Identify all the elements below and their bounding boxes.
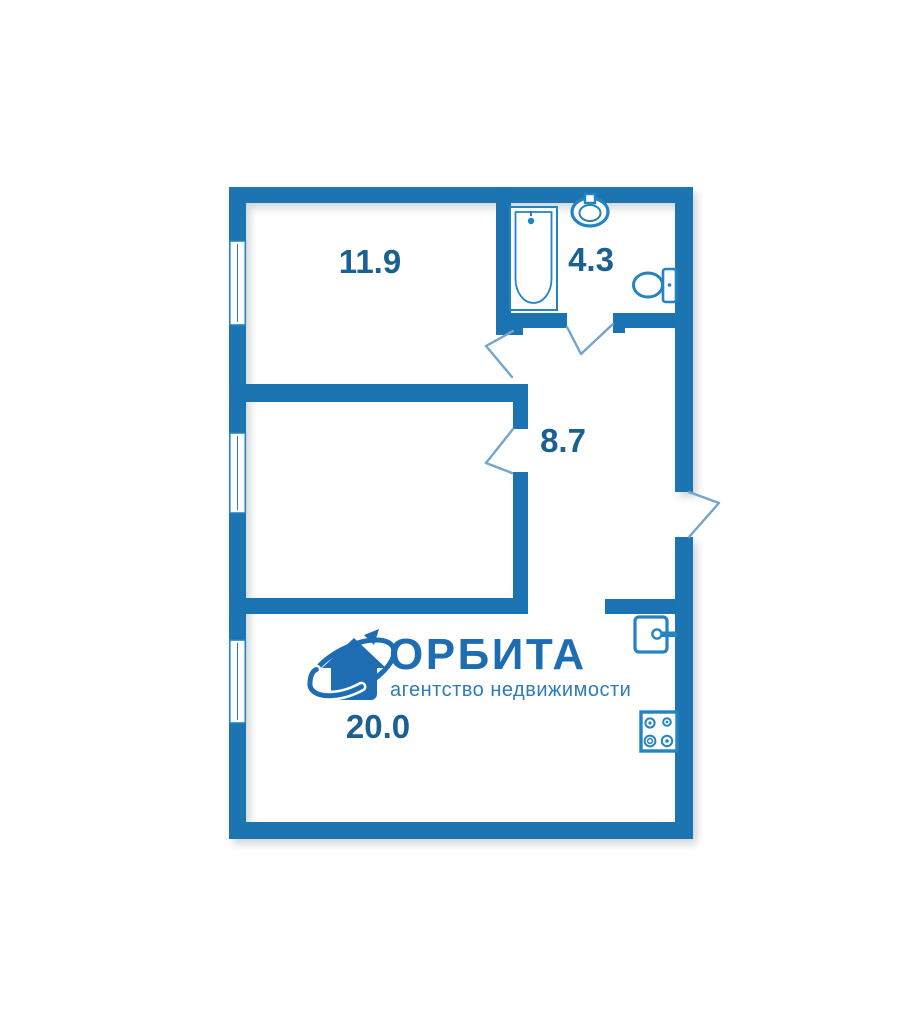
window: [230, 433, 246, 513]
toilet-icon: [634, 269, 677, 302]
wall: [496, 313, 567, 328]
wall: [229, 822, 693, 839]
wall: [675, 187, 693, 492]
wall: [229, 384, 527, 402]
wall: [513, 472, 528, 599]
window: [230, 241, 246, 325]
floor-plan-page: 11.9 4.3 8.7 20.0 ОРБИТА агентство недви…: [0, 0, 924, 1024]
bathtub-icon: [510, 207, 557, 310]
room-label-bathroom: 4.3: [568, 241, 614, 278]
room-label-hallway: 8.7: [540, 422, 586, 459]
room-label-living-kitchen: 20.0: [346, 708, 410, 745]
house-orbit-logo-icon: [301, 628, 402, 707]
agency-tagline: агентство недвижимости: [390, 679, 631, 701]
window: [230, 640, 246, 723]
wall: [613, 313, 677, 328]
door-swing: [486, 429, 513, 473]
stove-icon: [641, 712, 677, 751]
door-swing: [567, 324, 613, 354]
door-swing: [689, 492, 719, 537]
door-swing: [486, 331, 513, 377]
agency-name: ОРБИТА: [389, 630, 587, 679]
wall: [229, 187, 693, 203]
wall: [675, 537, 693, 839]
wall: [605, 599, 677, 614]
wall: [513, 384, 528, 429]
windows: [230, 241, 246, 723]
wall: [229, 598, 528, 614]
agency-logo: ОРБИТА агентство недвижимости: [301, 628, 631, 707]
room-label-bedroom: 11.9: [339, 243, 401, 280]
wall: [496, 187, 511, 328]
kitchen-sink-icon: [635, 617, 677, 652]
wall: [613, 328, 625, 333]
floor-plan: 11.9 4.3 8.7 20.0 ОРБИТА агентство недви…: [0, 0, 924, 1024]
outer-walls: [229, 187, 693, 839]
